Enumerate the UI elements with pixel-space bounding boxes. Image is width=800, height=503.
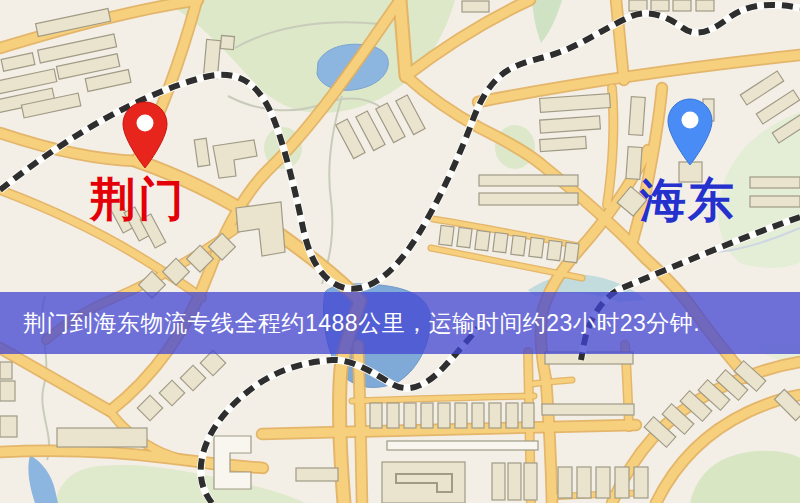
map-canvas[interactable] [0, 0, 800, 503]
origin-pin-icon[interactable] [122, 101, 168, 169]
map-viewport[interactable]: 荆门 海东 荆门到海东物流专线全程约1488公里，运输时间约23小时23分钟. [0, 0, 800, 503]
destination-city-label: 海东 [640, 177, 736, 223]
route-info-banner: 荆门到海东物流专线全程约1488公里，运输时间约23小时23分钟. [0, 292, 800, 354]
route-info-text: 荆门到海东物流专线全程约1488公里，运输时间约23小时23分钟. [0, 308, 700, 339]
destination-pin-icon[interactable] [667, 98, 713, 166]
origin-city-label: 荆门 [90, 176, 186, 222]
